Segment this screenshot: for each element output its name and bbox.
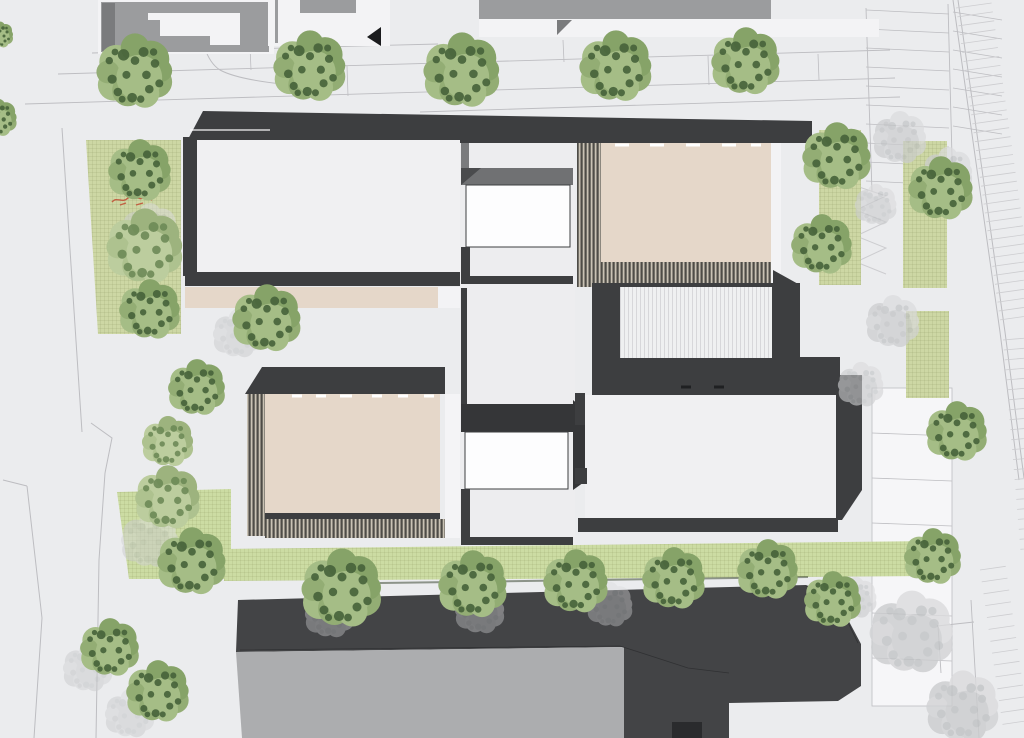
sw-louver-bottom bbox=[265, 519, 445, 538]
south-facade bbox=[236, 647, 624, 738]
north-wing-roof bbox=[197, 140, 460, 272]
skylight-2-edge-l bbox=[461, 489, 470, 538]
north-wing-edge-left bbox=[183, 137, 197, 276]
skylight-2 bbox=[465, 432, 568, 489]
se-edge-bottom bbox=[578, 518, 838, 532]
se-link-band bbox=[775, 378, 836, 395]
ne-roof-terrace bbox=[601, 143, 771, 262]
bldg-nw-wing bbox=[102, 3, 115, 51]
sw-louver-left bbox=[247, 394, 265, 536]
sw-gap-white bbox=[445, 394, 460, 538]
sw-roof-terrace bbox=[265, 394, 440, 513]
se-edge-left-2 bbox=[575, 468, 587, 484]
north-terrace-gap bbox=[438, 287, 462, 308]
bldg-ne-plinth bbox=[479, 19, 879, 37]
sw-roofband bbox=[245, 367, 445, 394]
site-plan bbox=[0, 0, 1024, 738]
site-plan-svg bbox=[0, 0, 1024, 738]
atrium-edge-bottom bbox=[461, 537, 573, 545]
skylight-1-edge-b bbox=[461, 276, 573, 284]
se-edge-left-1 bbox=[575, 393, 585, 425]
north-wing-edge-bottom bbox=[185, 272, 462, 286]
atrium-edge-mid bbox=[461, 288, 467, 404]
atrium-edge-top bbox=[461, 143, 469, 170]
bldg-n-edge bbox=[275, 0, 278, 43]
mid-east-seam-roof bbox=[620, 287, 772, 358]
bldg-ne-band bbox=[479, 0, 771, 19]
bldg-n-roof-strip bbox=[300, 0, 356, 13]
skylight-1 bbox=[466, 185, 570, 247]
se-roof bbox=[585, 395, 836, 518]
skylight-2-band bbox=[461, 404, 573, 432]
north-wing-roofband-highlight bbox=[190, 129, 270, 131]
south-roof-vent bbox=[672, 722, 702, 738]
north-terrace bbox=[185, 287, 438, 308]
sw-edge-bottom bbox=[265, 513, 440, 519]
ne-roof-edge-right bbox=[771, 143, 781, 287]
